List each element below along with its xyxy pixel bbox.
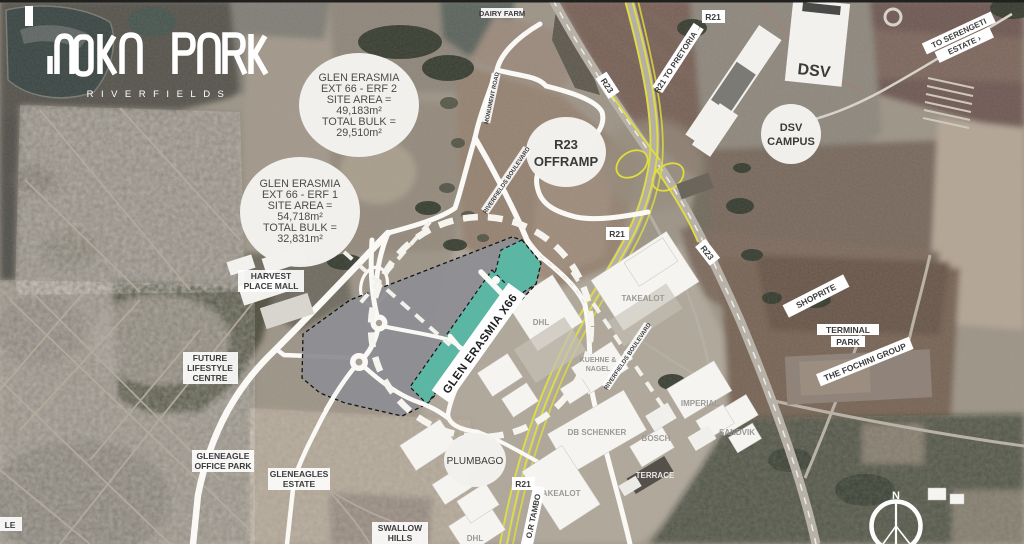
svg-text:PARK: PARK [836,337,860,347]
svg-text:R21: R21 [609,229,625,239]
svg-text:PLUMBAGO: PLUMBAGO [447,456,504,467]
svg-text:DAIRY FARM: DAIRY FARM [479,9,525,18]
svg-text:LIFESTYLE: LIFESTYLE [187,363,233,373]
svg-text:29,510m²: 29,510m² [336,127,382,139]
svg-text:DHL: DHL [467,534,484,543]
svg-text:PLACE MALL: PLACE MALL [244,281,299,291]
svg-text:CAMPUS: CAMPUS [767,136,815,148]
svg-text:32,831m²: 32,831m² [277,233,323,245]
svg-text:GLENEAGLES: GLENEAGLES [270,469,329,479]
svg-text:ESTATE: ESTATE [283,479,316,489]
svg-text:TERMINAL: TERMINAL [826,325,870,335]
svg-text:DSV: DSV [797,61,832,81]
svg-text:GLENEAGLE: GLENEAGLE [197,451,250,461]
svg-text:HILLS: HILLS [388,533,413,543]
svg-text:OFFICE PARK: OFFICE PARK [195,461,253,471]
svg-text:LE: LE [5,520,16,530]
svg-text:HARVEST: HARVEST [251,271,292,281]
svg-text:DSV: DSV [780,122,803,134]
svg-text:SANDVIK: SANDVIK [719,428,755,437]
svg-text:DHL: DHL [533,318,550,327]
svg-text:N: N [892,490,900,502]
svg-text:TERRACE: TERRACE [636,471,675,480]
svg-text:SWALLOW: SWALLOW [378,523,423,533]
svg-text:RIVERFIELDS: RIVERFIELDS [87,89,232,100]
svg-text:OFFRAMP: OFFRAMP [534,154,599,169]
svg-text:DB SCHENKER: DB SCHENKER [568,428,627,437]
svg-text:IMPERIAL: IMPERIAL [681,399,719,408]
svg-text:CENTRE: CENTRE [193,373,228,383]
svg-text:BOSCH: BOSCH [642,434,671,443]
svg-text:NAGEL: NAGEL [586,366,611,373]
svg-text:KUEHNE &: KUEHNE & [580,357,617,364]
svg-text:R21: R21 [705,12,721,22]
svg-text:R21: R21 [515,479,531,489]
svg-text:FUTURE: FUTURE [193,353,228,363]
svg-text:TAKEALOT: TAKEALOT [622,294,665,303]
svg-text:R23: R23 [554,137,578,152]
